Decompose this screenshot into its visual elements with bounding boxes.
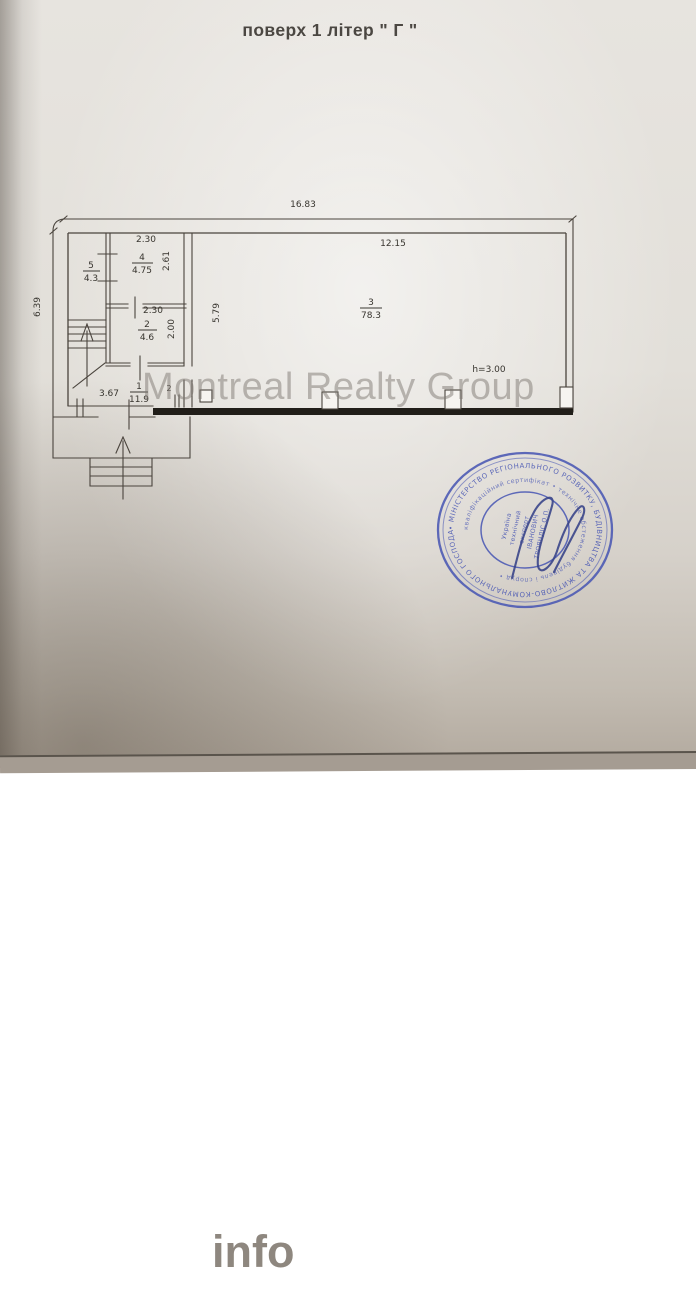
logo-info-text: info	[212, 1226, 294, 1278]
scanned-page: поверх 1 літер " Г "	[0, 0, 696, 768]
svg-text:• МІНІСТЕРСТВО РЕГІОНАЛЬНОГО Р: • МІНІСТЕРСТВО РЕГІОНАЛЬНОГО РОЗВИТКУ, Б…	[0, 0, 603, 598]
stamp-center-text: Україна технічний експерт ІВАНОВИЧ ТРОЯН…	[497, 500, 551, 561]
page-edge-shadow	[0, 751, 696, 774]
site-logo: DOM Pliz info	[0, 580, 360, 768]
logo-pliz-text: Pliz	[8, 1202, 155, 1299]
stamp-ring-text: • МІНІСТЕРСТВО РЕГІОНАЛЬНОГО РОЗВИТКУ, Б…	[0, 0, 603, 598]
